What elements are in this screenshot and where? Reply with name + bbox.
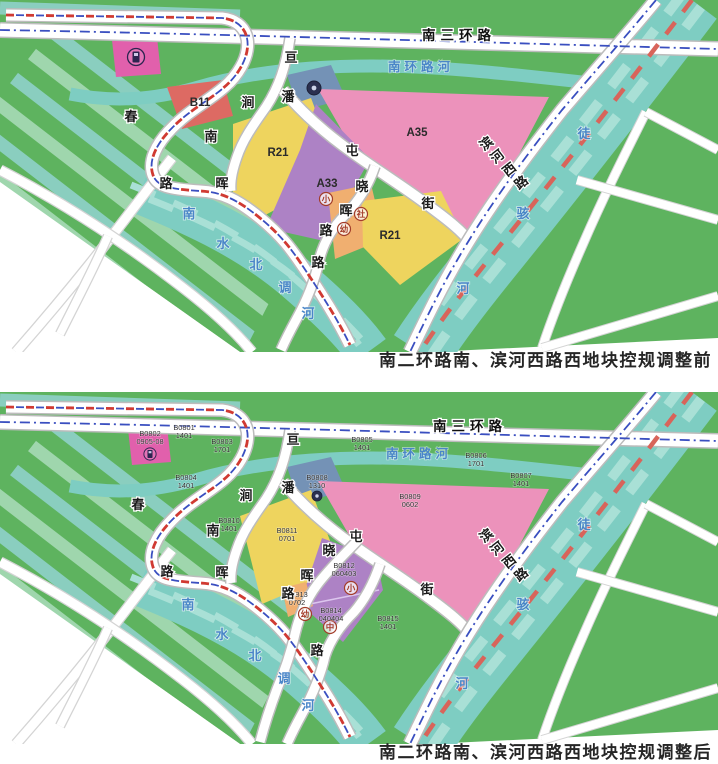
river-name-char: 河 xyxy=(456,281,469,296)
road-name-char: 屯 xyxy=(345,143,358,158)
river-name-char: 调 xyxy=(277,671,290,686)
river-name-char: 水 xyxy=(215,627,229,642)
river-name-char: 水 xyxy=(216,236,230,251)
road-name-char: 潘 xyxy=(281,480,295,495)
parcel-label-B0807: B08071401 xyxy=(510,471,531,488)
river-name-char: 北 xyxy=(248,648,261,663)
road-name-char: 路 xyxy=(310,643,324,658)
river-name-char: 调 xyxy=(278,280,291,295)
facility-circle-小: 小 xyxy=(345,582,358,595)
road-name-char: 晖 xyxy=(215,176,228,191)
river-name-char: 南 xyxy=(181,597,194,612)
parcel-label-B0809: B08090602 xyxy=(399,492,420,509)
svg-text:小: 小 xyxy=(321,194,331,204)
parcel-label-B0803: B08031701 xyxy=(211,437,232,454)
road-name-char: 南 xyxy=(204,129,217,144)
parcel-label-B0804: B08041401 xyxy=(175,473,196,490)
parcel-label-B0815: B08151401 xyxy=(377,614,398,631)
planning-figure: { "captions": [ {"id": "before", "text":… xyxy=(0,0,718,764)
map-svg-after: 小幼中B08011401B08020905-08B08031701B080514… xyxy=(0,392,718,744)
road-name-char: 路 xyxy=(159,176,173,191)
road-name-char: 屯 xyxy=(349,529,362,544)
ring-road-label: 南三环路 xyxy=(433,418,507,434)
parcel-label-B0810: B08101401 xyxy=(218,516,239,533)
road-name-char: 亘 xyxy=(286,432,299,447)
parcel-label-B0806: B08061701 xyxy=(465,451,486,468)
road-name-char: 涧 xyxy=(241,95,254,110)
road-name-char: 涧 xyxy=(239,488,252,503)
facility-circle-小: 小 xyxy=(320,193,333,206)
river-name-char: 徒 xyxy=(576,517,591,532)
road-name-char: 晖 xyxy=(300,568,313,583)
parcel-label-B0805: B08051401 xyxy=(351,435,372,452)
svg-text:1401: 1401 xyxy=(513,479,529,488)
ring-road-label: 南三环路 xyxy=(422,27,496,43)
svg-text:1401: 1401 xyxy=(176,431,192,440)
svg-text:中: 中 xyxy=(326,622,335,632)
zone-code-label: R21 xyxy=(267,147,289,159)
road-name-char: 路 xyxy=(281,586,295,601)
nanhuan-river-label: 南环路河 xyxy=(386,446,452,461)
river-name-char: 北 xyxy=(249,257,262,272)
road-name-char: 春 xyxy=(130,497,145,512)
road-name-char: 晖 xyxy=(215,565,228,580)
svg-text:1701: 1701 xyxy=(214,445,230,454)
svg-text:1701: 1701 xyxy=(468,459,484,468)
road-name-char: 潘 xyxy=(281,89,295,104)
gas-station-icon xyxy=(128,49,145,66)
svg-text:1310: 1310 xyxy=(309,481,325,490)
road-name-char: 路 xyxy=(319,223,333,238)
parcel-label-B0814: B0814040404 xyxy=(319,606,344,623)
map-before-adjustment: 小社幼B11R21A33A35R21亘潘涧南春路晖屯晓街晖路路滨河西路南水北调河… xyxy=(0,0,718,352)
caption-before: 南二环路南、滨河西路西地块控规调整前 xyxy=(0,346,712,371)
road-name-char: 晓 xyxy=(355,179,368,194)
river-name-char: 骇 xyxy=(516,206,529,221)
road-name-char: 亘 xyxy=(284,50,297,65)
parcel-label-B0811: B08110701 xyxy=(277,526,298,543)
svg-text:1401: 1401 xyxy=(354,443,370,452)
svg-text:0602: 0602 xyxy=(402,500,418,509)
river-name-char: 河 xyxy=(301,698,314,713)
svg-text:040404: 040404 xyxy=(319,614,344,623)
facility-circle-幼: 幼 xyxy=(338,223,351,236)
svg-text:幼: 幼 xyxy=(340,224,349,234)
nanhuan-river-label: 南环路河 xyxy=(388,59,454,74)
road-name-char: 晓 xyxy=(322,543,335,558)
public-facility-icon xyxy=(312,491,322,501)
zone-code-label: B11 xyxy=(190,97,211,109)
map-svg-before: 小社幼B11R21A33A35R21亘潘涧南春路晖屯晓街晖路路滨河西路南水北调河… xyxy=(0,0,718,352)
svg-text:幼: 幼 xyxy=(301,609,310,619)
svg-text:小: 小 xyxy=(346,583,356,593)
zone-code-label: R21 xyxy=(379,230,401,242)
road-name-char: 路 xyxy=(160,564,174,579)
road-name-char: 晖 xyxy=(339,203,352,218)
parcel-label-B0801: B08011401 xyxy=(173,423,194,440)
river-name-char: 骇 xyxy=(516,597,529,612)
parcel-label-B0802: B08020905-08 xyxy=(136,429,163,446)
gas-station-icon xyxy=(144,448,156,460)
public-facility-icon xyxy=(307,81,321,95)
svg-text:0905-08: 0905-08 xyxy=(136,437,163,446)
road-name-char: 春 xyxy=(123,109,138,124)
map-after-adjustment: 小幼中B08011401B08020905-08B08031701B080514… xyxy=(0,392,718,744)
road-name-char: 街 xyxy=(420,196,434,211)
zone-code-label: A33 xyxy=(316,178,337,190)
facility-circle-幼: 幼 xyxy=(299,608,312,621)
zone-code-label: A35 xyxy=(406,127,428,139)
road-name-char: 街 xyxy=(419,582,433,597)
parcel-label-B0812: B0812060403 xyxy=(332,561,357,578)
river-name-char: 河 xyxy=(455,676,468,691)
svg-text:060403: 060403 xyxy=(332,569,357,578)
svg-text:1401: 1401 xyxy=(221,524,237,533)
road-name-char: 南 xyxy=(206,523,219,538)
svg-text:社: 社 xyxy=(356,209,366,219)
caption-after: 南二环路南、滨河西路西地块控规调整后 xyxy=(0,738,712,763)
svg-text:0701: 0701 xyxy=(279,534,295,543)
river-name-char: 南 xyxy=(182,206,195,221)
river-name-char: 河 xyxy=(301,306,314,321)
river-name-char: 徒 xyxy=(576,126,591,141)
parcel-label-B0808: B08081310 xyxy=(306,473,327,490)
road-name-char: 路 xyxy=(311,255,325,270)
svg-text:1401: 1401 xyxy=(380,622,396,631)
svg-text:1401: 1401 xyxy=(178,481,194,490)
facility-circle-社: 社 xyxy=(355,208,368,221)
